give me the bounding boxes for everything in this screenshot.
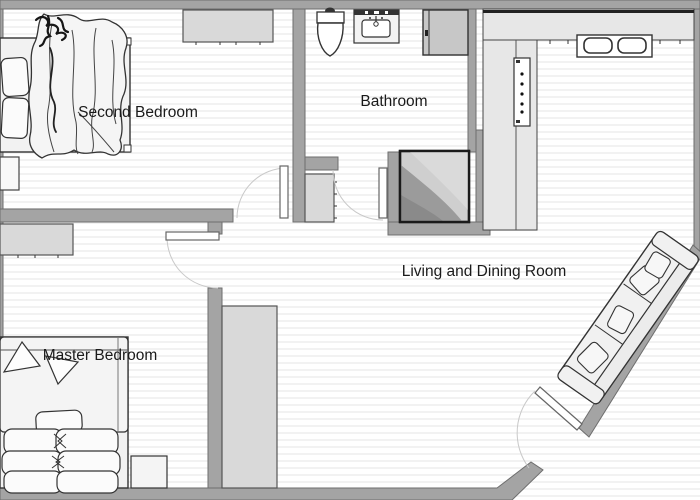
door-leaf-icon xyxy=(280,166,288,218)
label-living-dining: Living and Dining Room xyxy=(402,263,567,280)
label-second-bedroom: Second Bedroom xyxy=(78,104,198,121)
second-bedroom: Second Bedroom xyxy=(0,10,273,190)
label-master-bedroom: Master Bedroom xyxy=(43,347,158,364)
bedpost-icon xyxy=(124,145,131,152)
wall-shower-left xyxy=(388,152,400,222)
master-bedroom: Master Bedroom xyxy=(0,224,167,493)
wall-bedroom2-bathroom xyxy=(293,9,305,222)
sideboard-icon xyxy=(222,306,277,488)
door-leaf-icon xyxy=(379,168,387,218)
sofa-icon xyxy=(556,230,700,406)
blanket-icon xyxy=(29,14,127,158)
toilet-icon xyxy=(317,8,344,57)
wall-shower-bottom xyxy=(388,222,490,235)
bathroom-sink-icon xyxy=(354,10,399,43)
wall-top xyxy=(0,0,700,9)
nightstand-icon xyxy=(131,456,167,488)
pillow-icon xyxy=(56,429,118,454)
pillow-icon xyxy=(1,97,29,138)
door-leaf-icon xyxy=(166,232,219,240)
door-second-bedroom xyxy=(237,166,288,218)
wall-right xyxy=(694,9,700,252)
nightstand-icon xyxy=(0,157,19,190)
door-master-bedroom xyxy=(166,232,219,288)
wall-bathroom-south xyxy=(305,157,338,170)
pillow-icon xyxy=(57,471,118,493)
floor-plan-drawing: Second Bedroom xyxy=(0,0,700,500)
wall-bedroom2-south xyxy=(0,209,233,222)
floor-plan: Second Bedroom xyxy=(0,0,700,500)
oven-panel-icon xyxy=(514,58,530,126)
wall-bathroom-east xyxy=(468,9,476,152)
shower-icon xyxy=(400,151,469,222)
pillow-icon xyxy=(1,57,30,97)
bed2-icon xyxy=(0,14,131,158)
kitchen-double-sink-icon xyxy=(577,35,652,57)
kitchen xyxy=(483,9,694,230)
bathroom-shelf-icon xyxy=(423,10,468,55)
dresser-icon xyxy=(0,224,73,255)
entrance-door xyxy=(517,387,582,468)
door-leaf-icon xyxy=(535,387,582,430)
living-dining-room: Living and Dining Room xyxy=(222,230,700,488)
door-bathroom xyxy=(333,168,387,220)
desk-icon xyxy=(183,10,273,42)
pillow-icon xyxy=(4,471,62,493)
hall-cabinet-icon xyxy=(305,174,337,222)
label-bathroom: Bathroom xyxy=(360,93,427,110)
pillow-icon xyxy=(4,429,62,454)
wall-master-east xyxy=(208,288,222,488)
